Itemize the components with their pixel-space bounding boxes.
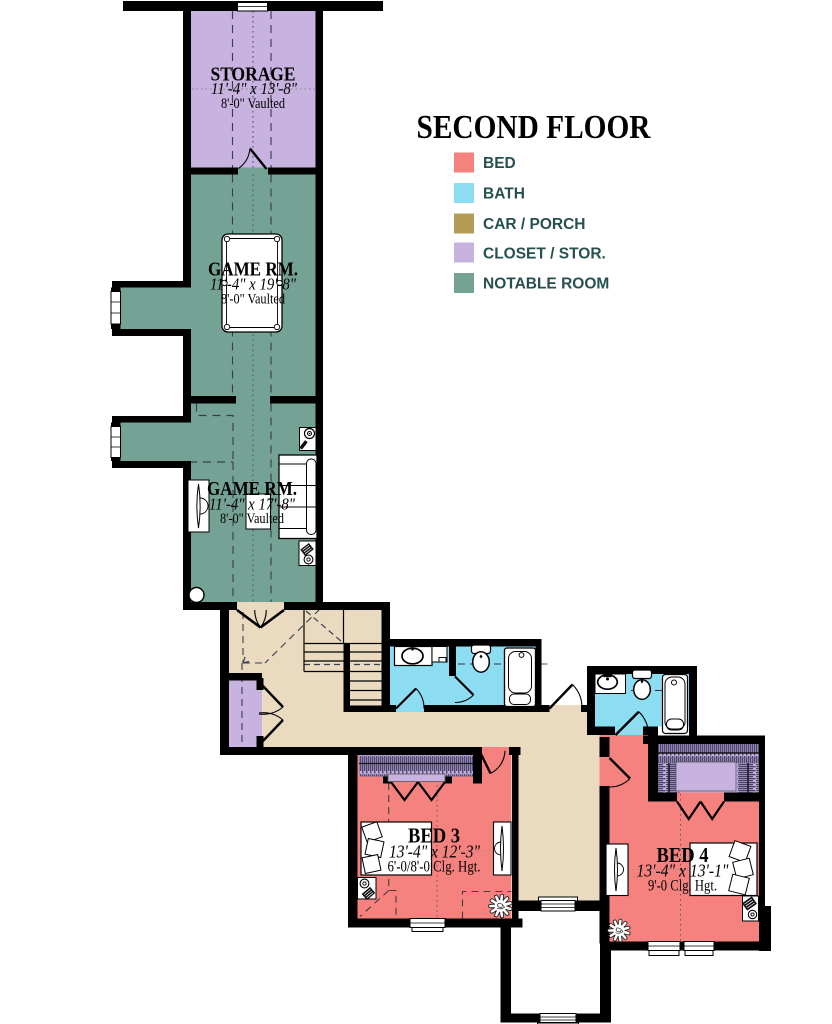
- svg-text:6'-0/8'-0 Clg. Hgt.: 6'-0/8'-0 Clg. Hgt.: [388, 859, 481, 876]
- svg-text:9'-0 Clg. Hgt.: 9'-0 Clg. Hgt.: [648, 878, 717, 895]
- svg-text:CAR / PORCH: CAR / PORCH: [483, 216, 585, 233]
- svg-text:SECOND FLOOR: SECOND FLOOR: [417, 109, 651, 146]
- svg-text:8'-0" Vaulted: 8'-0" Vaulted: [221, 96, 285, 112]
- svg-text:BED: BED: [483, 155, 516, 172]
- svg-text:BATH: BATH: [483, 186, 525, 203]
- svg-text:NOTABLE ROOM: NOTABLE ROOM: [483, 276, 609, 293]
- svg-text:8'-0" Vaulted: 8'-0" Vaulted: [221, 292, 285, 308]
- svg-text:CLOSET / STOR.: CLOSET / STOR.: [483, 246, 606, 263]
- svg-text:8'-0" Vaulted: 8'-0" Vaulted: [220, 511, 284, 527]
